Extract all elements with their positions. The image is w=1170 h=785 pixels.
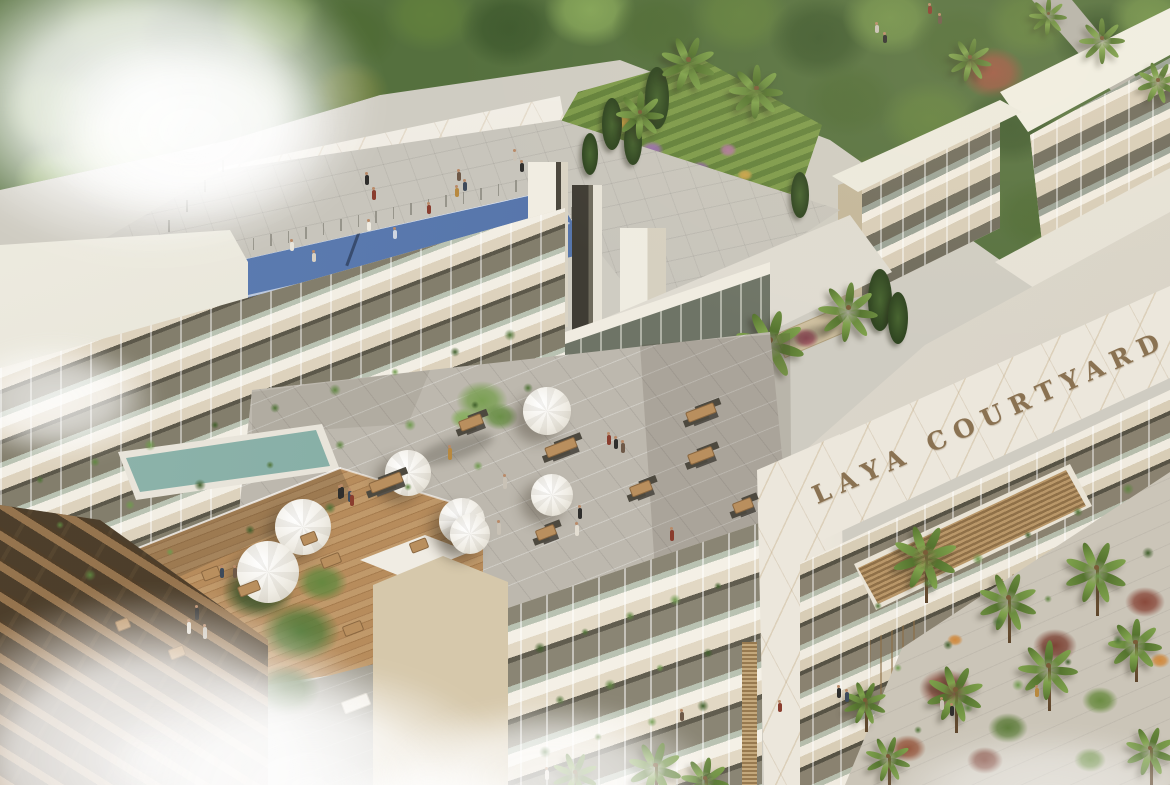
architectural-rendering: LAYA COURTYARD [0, 0, 1170, 785]
sunlight-overlay [0, 0, 1170, 785]
